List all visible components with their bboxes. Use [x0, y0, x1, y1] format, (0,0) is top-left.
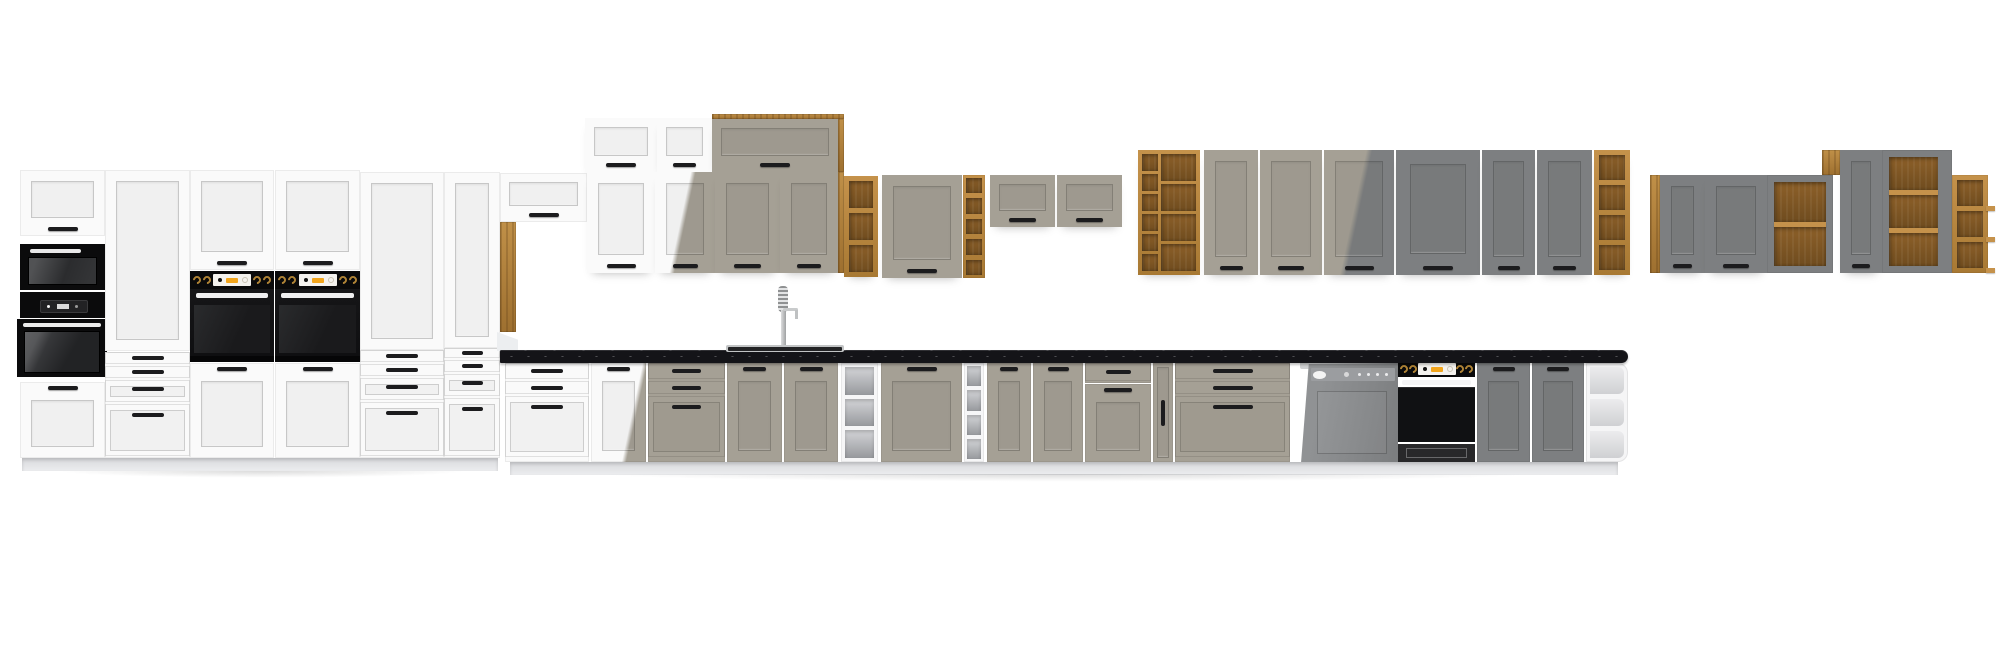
tall5-drawers-drawer-3 [360, 378, 444, 400]
right-tall-door-panel [1851, 161, 1871, 255]
base-door-wide-panel [892, 381, 951, 451]
base-rack-white [964, 363, 984, 462]
base-door-wide [881, 363, 962, 462]
tall2-drawers [105, 352, 190, 458]
corner-panel [497, 332, 518, 351]
base-door-1-handle [607, 367, 630, 371]
wall-oak-shelf-tower [844, 176, 878, 277]
right-oak-shelves-cell-1 [1957, 180, 1983, 206]
wall-oak-end-shelf-cell-4 [1599, 245, 1625, 270]
built-in-oven-lower-drawer [1398, 444, 1475, 462]
oven-tower1-door-handle [217, 261, 247, 265]
right-open-cab [1767, 175, 1833, 273]
oven-tower2-panel-display-dot [304, 278, 308, 282]
base-cab5-drawer [1085, 363, 1151, 383]
base-cab5-drawer-drawer-1-handle [1106, 370, 1131, 374]
base-door-5-handle [1493, 367, 1515, 371]
tall2-drawers-drawer-3-handle [132, 387, 164, 391]
wall-oak-end-shelf-cell-1 [1599, 155, 1625, 180]
wall-door-3-panel [726, 183, 769, 255]
base-sink-door [727, 363, 782, 462]
tall5-door-panel [371, 183, 433, 339]
wall-flip-high-1 [990, 175, 1055, 227]
wall-oak-end-shelf-cell-3 [1599, 215, 1625, 240]
oven-tower1-body-door-glass [194, 305, 270, 353]
wall-wine-rack-big-cell-4 [1161, 244, 1196, 271]
tall5-drawers [360, 350, 444, 458]
wall-flip-high-1-handle [1009, 218, 1036, 222]
base-drawers-1-drawer-2 [505, 381, 589, 394]
wall-tall-door-wide-panel [1410, 164, 1466, 254]
built-in-oven-lower-drawer-vent [1406, 448, 1467, 458]
base-door-3 [987, 363, 1031, 462]
oven-tower1-panel-knob-2 [201, 274, 212, 285]
upper-flip-1-panel [594, 127, 648, 156]
wall-oak-rack-narrow [963, 175, 985, 278]
wall-tall-door-2 [1260, 150, 1322, 275]
compact-oven-display [40, 300, 88, 313]
base-drawers-1-drawer-3-handle [531, 405, 563, 409]
wall-wine-rack-small-cell-6 [1142, 254, 1158, 271]
dishwasher-panel-recess [1317, 391, 1387, 454]
tall1-front-handle [48, 386, 78, 390]
wall-tall-door-1 [1204, 150, 1258, 275]
wall-tall-door-3 [1324, 150, 1394, 275]
right-tall-open-cab-cell-3 [1889, 233, 1938, 266]
wall-oak-end-shelf [1594, 150, 1630, 275]
built-in-oven-door [1398, 387, 1475, 442]
oven-tower2-panel [275, 271, 360, 289]
right-open-cab-cell-1 [1774, 182, 1826, 222]
oven-tower1-panel-display-dot [218, 278, 222, 282]
right-tall-open-cab [1882, 150, 1952, 273]
base-door-wide-handle [907, 367, 937, 371]
oven-tower2-body [275, 289, 360, 362]
base-drawers-3-drawer-1-handle [1213, 369, 1253, 373]
wall-flip-high-1-panel [999, 184, 1046, 211]
tall6-drawers [444, 348, 500, 458]
wall-tall-door-5-panel [1548, 161, 1581, 257]
base-drawers-2-drawer-3 [648, 396, 725, 457]
wall-door-4 [780, 172, 838, 273]
base-door-1-panel [602, 381, 635, 451]
wall-oak-rack-narrow-cell-4 [966, 239, 982, 254]
base-end-shelf-cell-2 [1590, 399, 1624, 426]
built-in-oven-panel-display [1418, 363, 1456, 375]
wall-tall-door-2-handle [1278, 266, 1304, 270]
base-door-5 [1477, 363, 1530, 462]
wall-door-4-handle [797, 264, 821, 268]
upper-oak-side [838, 119, 844, 172]
oven-tower2-panel-display-ring [328, 277, 334, 283]
base-filler-door-handle [1161, 400, 1165, 426]
dishwasher [1298, 360, 1398, 463]
oven-tower2-door-panel [286, 181, 349, 252]
sink-rim-bowl [728, 347, 842, 351]
upper-flip-1-handle [606, 163, 636, 167]
oven-tower2-panel-knob-1 [276, 274, 287, 285]
oven-tower2-body-handle-bar [281, 293, 354, 298]
oven-tower1-door [190, 170, 274, 270]
base-cab5-door-panel [1096, 402, 1140, 451]
tall6-door-panel [455, 183, 489, 337]
base-drawers-3 [1175, 363, 1290, 462]
base-cab5-door-handle [1104, 388, 1132, 392]
right-door-1-panel [1671, 186, 1694, 255]
left-wall-door [20, 170, 105, 236]
base-open-shelf-cell-3 [845, 430, 874, 458]
tall6-door [444, 172, 500, 348]
tall1-front [20, 382, 105, 458]
wall-door-1-handle [607, 264, 636, 268]
wall-tall-door-4-handle [1498, 266, 1520, 270]
base-sink-door-panel [738, 381, 771, 451]
flip-cab-small-panel [509, 182, 578, 206]
oven-tower1-panel-display-ring [242, 277, 248, 283]
tall2-drawers-drawer-4-handle [132, 413, 164, 417]
right-tall-door [1840, 150, 1882, 273]
faucet-spout-tip [795, 310, 798, 319]
oven-tower2-panel-knob-2 [286, 274, 297, 285]
right-oak-shelves-shelf-lip-2 [1986, 237, 1995, 242]
oven-tower1-door-panel [201, 181, 263, 252]
base-door-6-handle [1547, 367, 1569, 371]
built-in-oven-panel-display-ring [1447, 366, 1453, 372]
wall-wine-rack-small-cell-2 [1142, 174, 1158, 191]
tall5-drawers-drawer-4 [360, 402, 444, 456]
upper-flip-2-handle [673, 163, 696, 167]
tall2-drawers-drawer-4 [105, 404, 190, 456]
microwave [20, 244, 105, 290]
wall-door-3-handle [734, 264, 761, 268]
oven-tower2-body-bottom-band [275, 356, 360, 362]
wall-door-2-handle [673, 264, 698, 268]
compact-oven-display-dot [47, 305, 50, 308]
tall6-drawers-drawer-3-handle [462, 381, 483, 385]
tall2-drawers-drawer-1 [105, 352, 190, 364]
wall-door-4-panel [791, 183, 827, 255]
wall-oak-rack-narrow-cell-2 [966, 198, 982, 213]
wall-flip-high-2-panel [1066, 184, 1113, 211]
tall5-drawers-drawer-2 [360, 364, 444, 376]
base-door-2-panel [795, 381, 827, 451]
tall1-front-panel [31, 400, 94, 447]
tall5-drawers-drawer-1 [360, 350, 444, 362]
upper-flip-3-panel [721, 128, 829, 156]
oven-tower2-panel-knob-3 [337, 274, 348, 285]
wall-tall-door-3-handle [1345, 266, 1374, 270]
upper-flip-3 [712, 119, 838, 172]
base-door-3-panel [998, 381, 1020, 451]
flip-cab-small-handle [529, 213, 559, 217]
base-drawers-3-drawer-3-panel [1180, 402, 1285, 452]
right-door-1 [1660, 175, 1705, 273]
sink-rim [726, 345, 844, 352]
oven-tower1-front-handle [217, 367, 247, 371]
base-open-shelf-cell-1 [845, 367, 874, 395]
base-drawers-1-drawer-1-handle [531, 369, 563, 373]
base-door-1 [591, 363, 646, 462]
wall-single-door-cab [882, 175, 962, 278]
base-end-shelf-cell-1 [1590, 367, 1624, 394]
tall2-door [105, 170, 190, 351]
wall-door-3 [715, 172, 780, 273]
oven-tower1-panel [190, 271, 274, 289]
built-in-oven-panel-display-amber [1431, 367, 1443, 372]
built-in-oven-panel-knob-2 [1407, 363, 1418, 374]
right-door-2-handle [1723, 264, 1749, 268]
faucet-column [781, 310, 786, 347]
tall2-drawers-drawer-2-handle [132, 370, 164, 374]
wall-wine-rack-small-cell-4 [1142, 214, 1158, 231]
base-sink-door-handle [743, 367, 766, 371]
dishwasher-button-1 [1385, 373, 1388, 376]
oven-tower1-body-bottom-band [190, 356, 274, 362]
wall-oak-rack-narrow-cell-1 [966, 178, 982, 193]
base-drawers-1-drawer-2-handle [531, 386, 563, 390]
right-open-cab-cell-2 [1774, 227, 1826, 267]
oven-tower1-front [190, 363, 274, 458]
oven-tower1-panel-knob-3 [251, 274, 262, 285]
built-in-oven [1398, 361, 1475, 462]
oven-tower2-front-handle [303, 367, 333, 371]
tall2-drawers-drawer-2 [105, 366, 190, 378]
tall5-drawers-drawer-2-handle [386, 368, 418, 372]
tall6-drawers-drawer-4 [444, 398, 500, 456]
base-drawers-3-drawer-3 [1175, 396, 1290, 457]
wall-wine-rack-big-cell-2 [1161, 184, 1196, 211]
oven-tower2-front-panel [286, 381, 349, 447]
microwave-window [28, 257, 97, 285]
right-oak-shelves-shelf-lip-1 [1986, 206, 1995, 211]
tall6-drawers-drawer-1 [444, 348, 500, 358]
base-open-shelf [841, 363, 878, 462]
wall-flip-high-2 [1057, 175, 1122, 227]
wall-tall-door-5 [1537, 150, 1592, 275]
tall5-drawers-drawer-1-handle [386, 354, 418, 358]
tall5-drawers-drawer-4-handle [386, 411, 418, 415]
built-in-oven-panel-display-dot [1423, 367, 1427, 371]
wall-single-door-cab-handle [907, 269, 937, 273]
countertop [500, 350, 1628, 363]
left-plinth [22, 458, 498, 471]
left-wall-door-handle [48, 227, 78, 231]
wall-oak-rack-narrow-cell-5 [966, 260, 982, 275]
base-drawers-1 [505, 363, 589, 462]
base-drawers-3-drawer-2 [1175, 381, 1290, 394]
wall-door-1-panel [598, 183, 644, 255]
right-oak-block [1822, 150, 1840, 175]
base-rack-white-cell-1 [967, 366, 981, 386]
right-oak-side [1650, 175, 1660, 273]
wall-oak-shelf-tower-cell-1 [849, 181, 873, 208]
base-door-6 [1532, 363, 1584, 462]
oven-tower2-door [275, 170, 360, 270]
oven-tower1-body [190, 289, 274, 362]
single-oven [17, 319, 107, 377]
microwave-handle-bar [30, 249, 81, 253]
oven-tower1-panel-display [213, 274, 251, 286]
wall-tall-door-3-panel [1335, 161, 1383, 257]
tall2-drawers-drawer-1-handle [132, 356, 164, 360]
base-drawers-1-drawer-3 [505, 396, 589, 457]
wall-tall-door-2-panel [1271, 161, 1311, 257]
wall-wine-rack [1138, 150, 1200, 275]
base-drawers-1-drawer-1 [505, 363, 589, 379]
flip-cab-small [500, 173, 587, 222]
upper-flip-3-handle [760, 163, 790, 167]
wall-door-2-panel [666, 183, 704, 255]
oven-tower1-panel-knob-4 [261, 274, 272, 285]
wall-wine-rack-small-cell-3 [1142, 194, 1158, 211]
base-door-4-handle [1048, 367, 1069, 371]
built-in-oven-panel-knob-4 [1463, 363, 1474, 374]
base-rack-white-cell-3 [967, 415, 981, 435]
right-oak-shelves-shelf-lip-3 [1986, 268, 1995, 273]
wall-oak-end-shelf-cell-2 [1599, 185, 1625, 210]
right-door-1-handle [1673, 264, 1692, 268]
tall2-drawers-drawer-3 [105, 380, 190, 402]
single-oven-window [24, 331, 100, 373]
base-drawers-2-drawer-1-handle [672, 369, 701, 373]
tall6-drawers-drawer-2-handle [462, 364, 483, 368]
oven-tower2-body-door-glass [279, 305, 356, 353]
wall-wine-rack-big-cell-1 [1161, 154, 1196, 181]
oven-tower1-body-handle-bar [196, 293, 268, 298]
oven-tower1-panel-knob-1 [191, 274, 202, 285]
base-cab5-drawer-drawer-1 [1085, 363, 1151, 381]
base-door-2-handle [800, 367, 823, 371]
wall-tall-door-1-handle [1220, 266, 1243, 270]
base-drawers-2-drawer-2-handle [672, 386, 701, 390]
oven-tower2-door-handle [303, 261, 333, 265]
base-open-shelf-cell-2 [845, 399, 874, 427]
dishwasher-button-3 [1367, 373, 1370, 376]
base-drawers-2-drawer-2 [648, 381, 725, 394]
base-end-shelf-cell-3 [1590, 431, 1624, 458]
tall6-drawers-drawer-2 [444, 360, 500, 372]
oven-tower2-front [275, 363, 360, 458]
tall5-drawers-drawer-3-handle [386, 385, 418, 389]
base-end-shelf [1586, 363, 1628, 462]
compact-oven-display-dot2 [75, 305, 78, 308]
base-rack-white-cell-4 [967, 439, 981, 459]
base-drawers-3-drawer-1 [1175, 363, 1290, 379]
wall-tall-door-4 [1482, 150, 1535, 275]
right-oak-shelves-cell-3 [1957, 242, 1983, 268]
wall-single-door-cab-panel [893, 186, 951, 260]
built-in-oven-panel [1398, 361, 1475, 377]
base-door-5-panel [1488, 381, 1519, 451]
left-wall-door-panel [31, 181, 94, 218]
wall-oak-shelf-tower-cell-2 [849, 213, 873, 240]
dishwasher-logo-dot [1344, 372, 1349, 377]
right-tall-door-handle [1852, 264, 1870, 268]
oven-tower1-front-panel [201, 381, 263, 447]
base-door-3-handle [1000, 367, 1018, 371]
upper-flip-2 [657, 118, 712, 172]
base-door-2 [784, 363, 838, 462]
wall-tall-door-wide [1396, 150, 1480, 275]
right-tall-open-cab-cell-1 [1889, 157, 1938, 190]
wall-tall-door-5-handle [1553, 266, 1576, 270]
right-door-2 [1705, 175, 1767, 273]
right-oak-shelves [1952, 175, 1988, 273]
wall-wine-rack-small-cell-1 [1142, 154, 1158, 171]
oven-tower1-panel-display-amber [226, 278, 238, 283]
oven-tower2-panel-display [299, 274, 337, 286]
tall6-drawers-drawer-1-handle [462, 351, 483, 355]
wall-wine-rack-big-cell-3 [1161, 214, 1196, 241]
right-tall-open-cab-cell-2 [1889, 195, 1938, 228]
wall-door-2 [655, 172, 715, 273]
base-door-4-panel [1044, 381, 1072, 451]
base-drawers-2-drawer-3-handle [672, 405, 701, 409]
tall6-drawers-drawer-3 [444, 374, 500, 396]
base-door-4 [1033, 363, 1083, 462]
single-oven-window-sheen [25, 332, 99, 372]
wall-tall-door-4-panel [1493, 161, 1524, 257]
base-drawers-3-drawer-3-handle [1213, 405, 1253, 409]
built-in-oven-handle-bar [1402, 380, 1471, 385]
right-oak-shelves-cell-2 [1957, 211, 1983, 237]
base-drawers-3-drawer-2-handle [1213, 386, 1253, 390]
upper-flip-2-panel [666, 127, 703, 156]
base-filler-door [1153, 363, 1173, 462]
wall-oak-shelf-tower-cell-3 [849, 245, 873, 272]
upper-flip-1 [585, 118, 657, 172]
dishwasher-front-panel [1301, 363, 1398, 463]
oven-tower2-panel-display-amber [312, 278, 324, 283]
tall5-door [360, 172, 444, 350]
right-door-2-panel [1716, 186, 1756, 255]
base-door-6-panel [1543, 381, 1573, 451]
faucet [770, 286, 800, 351]
wall-tall-door-1-panel [1215, 161, 1247, 257]
compact-oven [20, 292, 105, 318]
base-floor-shadow [500, 474, 1630, 484]
base-drawers-2-drawer-1 [648, 363, 725, 379]
base-drawers-2-drawer-3-panel [653, 402, 720, 452]
oven-tower2-panel-knob-4 [347, 274, 358, 285]
base-rack-white-cell-2 [967, 390, 981, 410]
wall-oak-rack-narrow-cell-3 [966, 219, 982, 234]
dishwasher-button-4 [1358, 373, 1361, 376]
base-cab5-door [1085, 384, 1151, 462]
wall-tall-door-wide-handle [1423, 266, 1453, 270]
wall-wine-rack-small-cell-5 [1142, 234, 1158, 251]
tall6-drawers-drawer-4-handle [462, 407, 483, 411]
base-drawers-1-drawer-3-panel [510, 402, 584, 452]
left-floor-shadow [16, 471, 508, 480]
wall-flip-high-2-handle [1076, 218, 1103, 222]
oak-pillar [500, 222, 516, 332]
base-drawers-2 [648, 363, 725, 462]
compact-oven-display-bar [57, 304, 69, 309]
dishwasher-power-button [1313, 371, 1326, 379]
single-oven-handle-bar [23, 323, 101, 327]
wall-door-1 [587, 172, 655, 273]
tall6-drawers-drawer-4-panel [449, 404, 495, 451]
dishwasher-button-2 [1376, 373, 1379, 376]
kitchen-product-render [0, 0, 2000, 663]
tall2-door-panel [116, 181, 179, 340]
